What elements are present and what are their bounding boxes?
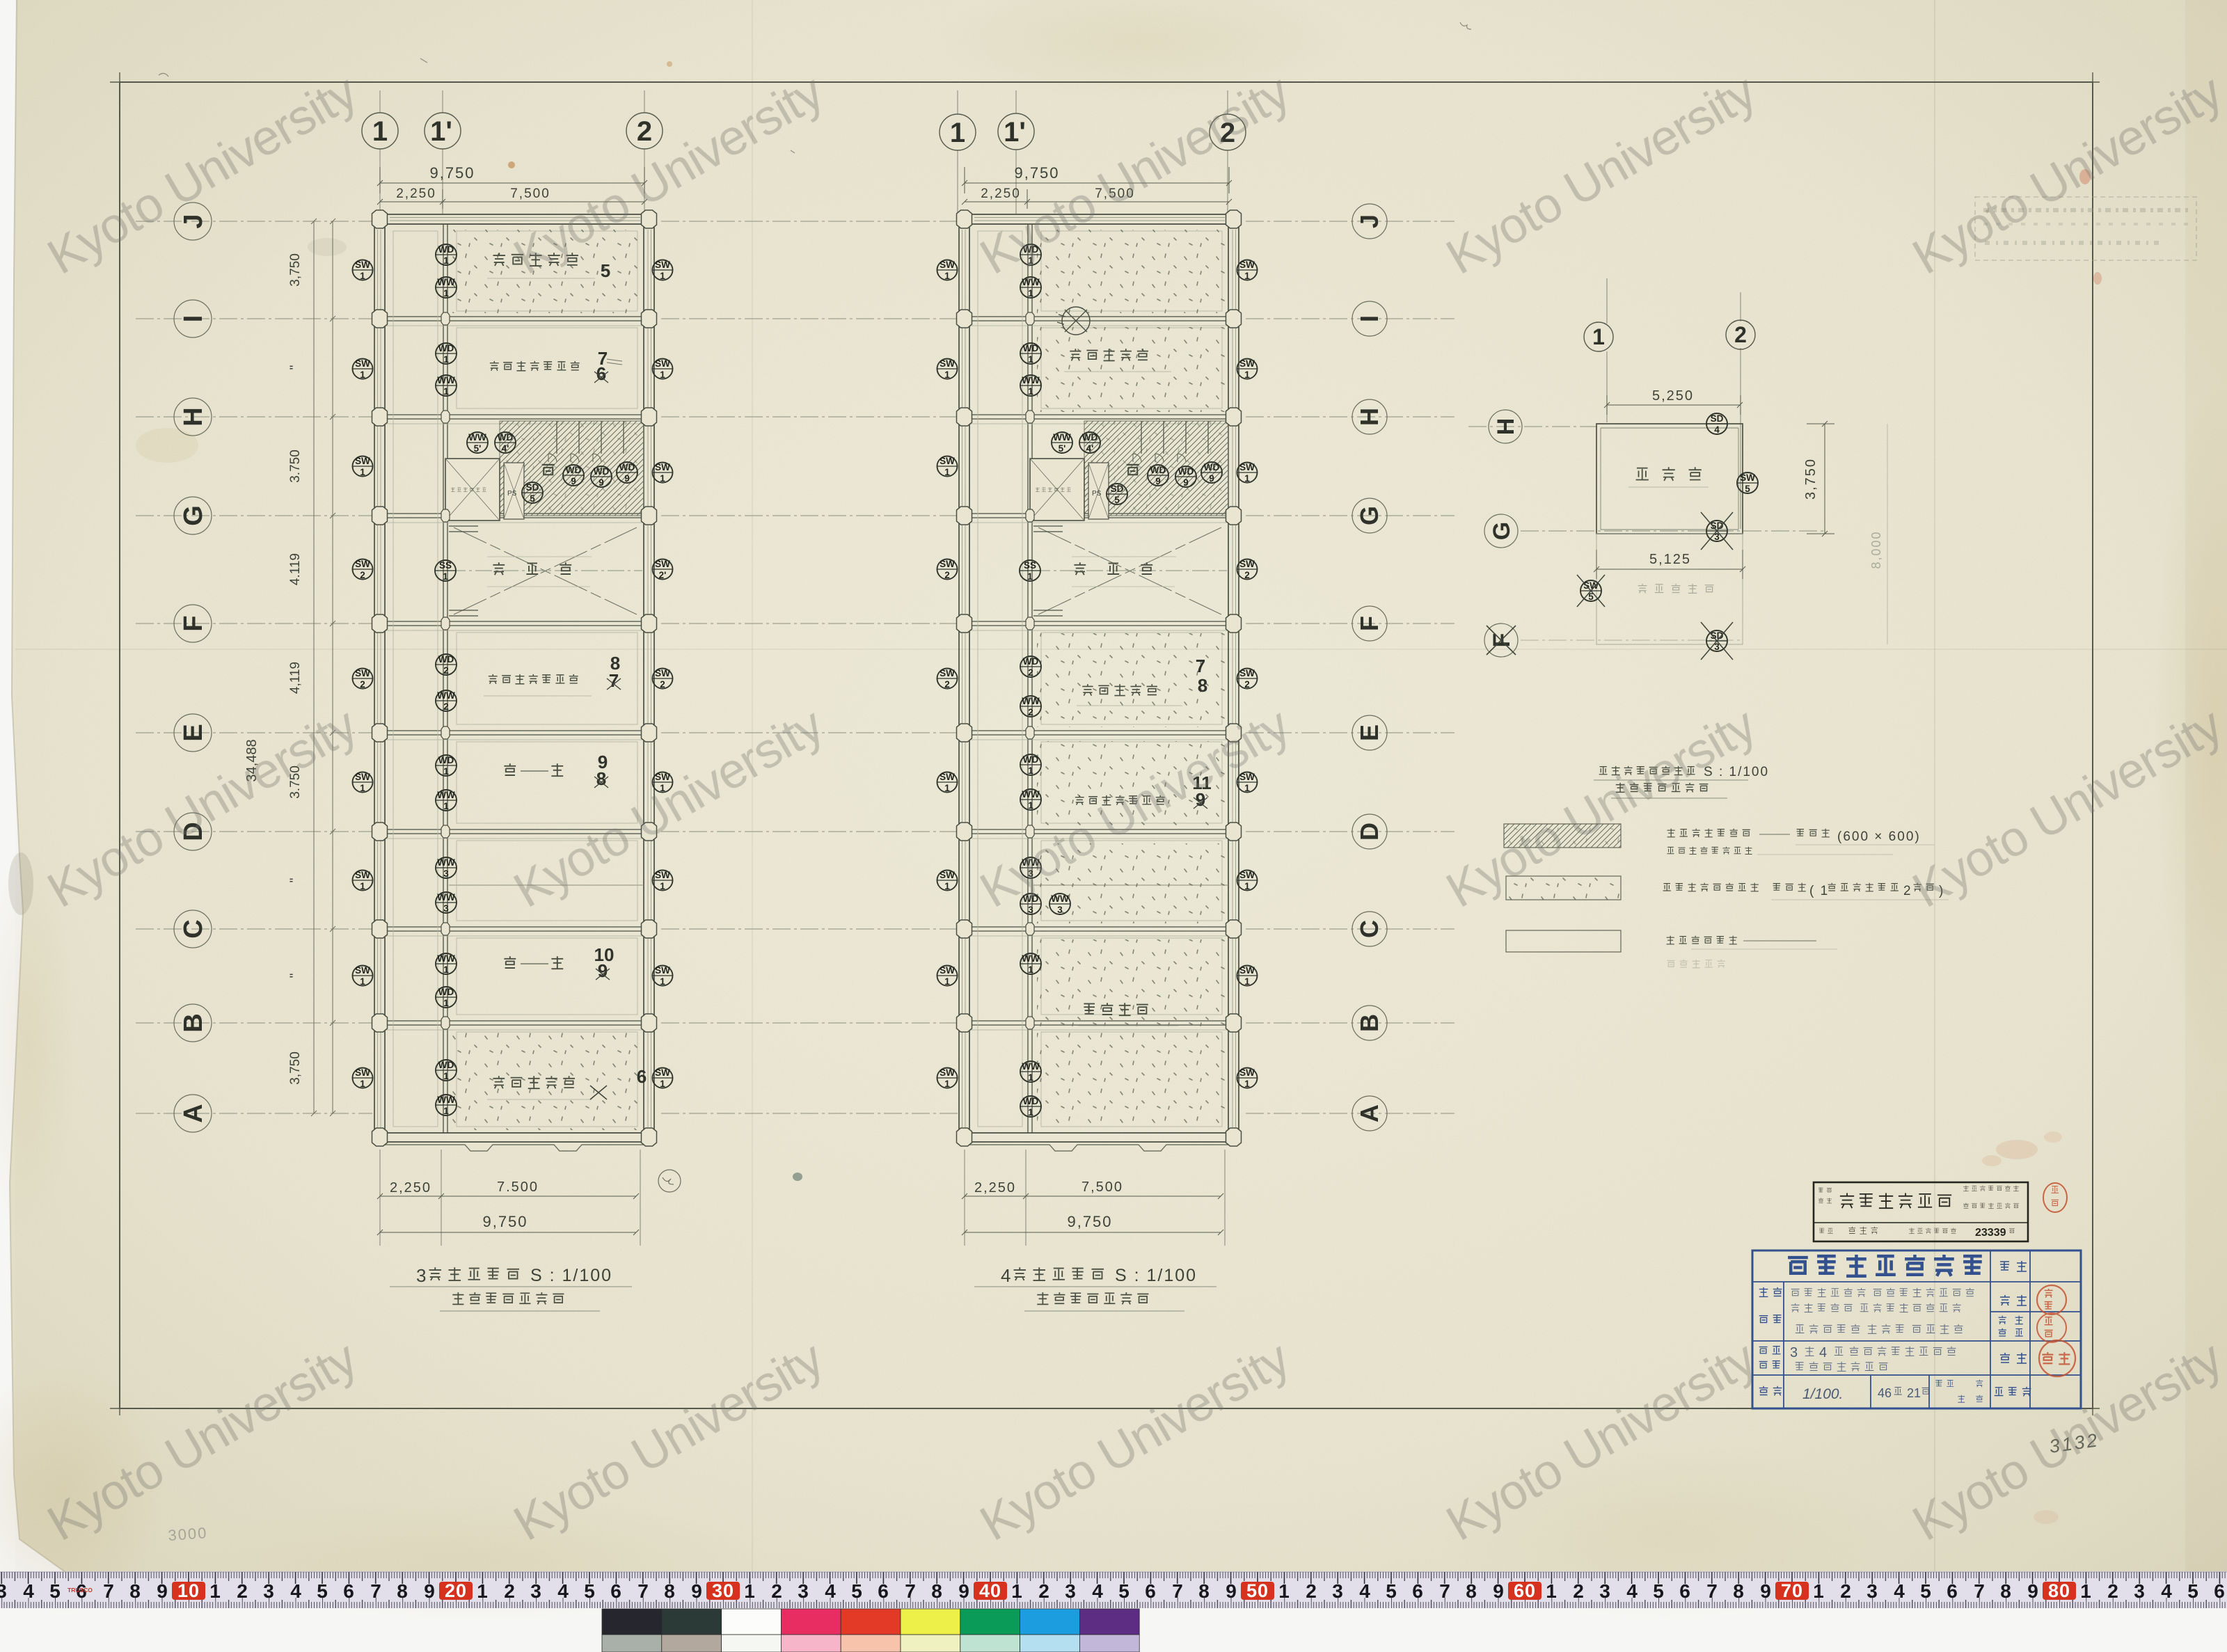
svg-text:1: 1 [443, 1071, 449, 1081]
svg-text:6: 6 [343, 1580, 354, 1602]
svg-text:A: A [1355, 1104, 1384, 1122]
svg-text:3: 3 [1599, 1580, 1610, 1602]
svg-text:WD: WD [1023, 656, 1039, 667]
svg-text:1: 1 [443, 255, 449, 266]
svg-text:1: 1 [2080, 1580, 2091, 1602]
svg-text:SD: SD [526, 482, 539, 493]
svg-text:3: 3 [443, 868, 449, 879]
svg-text:SS: SS [1024, 560, 1036, 571]
svg-text:SW: SW [655, 260, 670, 270]
svg-text:1: 1 [1592, 324, 1605, 349]
svg-text:WD: WD [498, 432, 514, 443]
svg-text:5: 5 [1920, 1580, 1931, 1602]
svg-text:1: 1 [944, 1079, 950, 1089]
svg-text:WW: WW [1022, 1061, 1040, 1072]
svg-text:3: 3 [1790, 1345, 1798, 1360]
svg-text:S : 1/100: S : 1/100 [530, 1266, 612, 1285]
svg-text:4: 4 [290, 1580, 301, 1602]
svg-text:1: 1 [360, 467, 365, 477]
svg-text:WW: WW [437, 790, 455, 800]
svg-text:SW: SW [1583, 580, 1599, 591]
svg-text:2: 2 [1038, 1580, 1049, 1602]
svg-text:WW: WW [1022, 277, 1040, 287]
svg-text:9: 9 [1493, 1580, 1504, 1602]
svg-text:SW: SW [940, 965, 955, 976]
svg-text:1: 1 [1813, 1580, 1824, 1602]
svg-text:SW: SW [1239, 870, 1255, 880]
svg-text:SW: SW [355, 965, 370, 976]
svg-text:SW: SW [355, 559, 370, 569]
svg-text:E: E [179, 724, 208, 741]
svg-text:5: 5 [584, 1580, 595, 1602]
svg-text:2: 2 [2107, 1580, 2118, 1602]
svg-text:WW: WW [437, 690, 455, 701]
svg-text:5: 5 [601, 260, 610, 281]
svg-text:PS: PS [507, 490, 517, 498]
svg-text:8: 8 [1198, 675, 1207, 696]
svg-text:80: 80 [2048, 1580, 2070, 1601]
svg-text:3: 3 [798, 1580, 809, 1602]
svg-text:SW: SW [940, 772, 955, 782]
svg-text:WD: WD [594, 466, 610, 477]
svg-text:WW: WW [437, 375, 455, 386]
svg-text:SS: SS [439, 560, 452, 571]
svg-text:1': 1' [430, 116, 452, 147]
svg-text:7: 7 [609, 670, 619, 691]
svg-text:1: 1 [1244, 976, 1250, 987]
svg-text:5: 5 [2187, 1580, 2198, 1602]
svg-text:8: 8 [397, 1580, 408, 1602]
svg-text:B: B [179, 1013, 208, 1032]
svg-text:1: 1 [944, 271, 950, 281]
svg-text:3: 3 [1028, 905, 1033, 915]
svg-text:7,500: 7,500 [510, 186, 550, 201]
svg-text:2: 2 [1903, 884, 1912, 898]
svg-text:WW: WW [437, 277, 455, 287]
svg-text:8: 8 [1466, 1580, 1477, 1602]
svg-text:1: 1 [1028, 386, 1033, 397]
svg-text:1: 1 [443, 354, 449, 365]
svg-text:1: 1 [360, 1079, 365, 1089]
svg-text:1: 1 [443, 766, 449, 777]
svg-text:J: J [1355, 214, 1384, 228]
svg-text:1: 1 [360, 370, 365, 380]
svg-text:2: 2 [1840, 1580, 1851, 1602]
svg-text:60: 60 [1514, 1580, 1536, 1601]
svg-text:1: 1 [1546, 1580, 1557, 1602]
svg-text:1: 1 [1278, 1580, 1290, 1602]
svg-text:1: 1 [372, 116, 388, 147]
svg-text:S : 1/100: S : 1/100 [1115, 1266, 1197, 1285]
svg-text:3,750: 3,750 [1803, 458, 1818, 500]
svg-text:3: 3 [0, 1580, 7, 1602]
svg-text:1: 1 [443, 1106, 449, 1116]
svg-text:3: 3 [2134, 1580, 2145, 1602]
svg-text:4: 4 [1359, 1580, 1370, 1602]
svg-text:2,250: 2,250 [396, 186, 436, 201]
svg-text:2,250: 2,250 [981, 186, 1021, 201]
svg-text:WW: WW [1022, 789, 1040, 800]
svg-text:1: 1 [443, 288, 449, 299]
svg-text:4: 4 [1714, 424, 1720, 435]
svg-text:5: 5 [1114, 495, 1120, 505]
svg-text:2: 2 [944, 570, 950, 580]
svg-text:WD: WD [1082, 432, 1098, 443]
svg-text:4,119: 4,119 [288, 662, 303, 694]
svg-text:2,250: 2,250 [974, 1180, 1016, 1196]
svg-text:7: 7 [637, 1580, 649, 1602]
svg-text:9,750: 9,750 [429, 164, 475, 182]
svg-text:2: 2 [1028, 707, 1033, 717]
svg-text:SW: SW [940, 668, 955, 678]
svg-text:2: 2 [443, 665, 449, 676]
svg-text:H: H [1493, 418, 1519, 436]
svg-text:G: G [179, 505, 208, 526]
svg-text:4: 4 [1819, 1345, 1827, 1360]
svg-text:( 1: ( 1 [1809, 884, 1829, 898]
svg-text:WD: WD [438, 654, 454, 665]
svg-text:SW: SW [1239, 965, 1255, 976]
svg-text:2: 2 [1028, 667, 1033, 678]
svg-text:1/100.: 1/100. [1802, 1386, 1843, 1402]
svg-text:WD: WD [1023, 343, 1039, 354]
svg-text:SW: SW [655, 965, 670, 976]
svg-text:H: H [179, 407, 208, 426]
svg-text:D: D [1355, 823, 1384, 841]
svg-text:9: 9 [424, 1580, 435, 1602]
svg-text:1: 1 [360, 881, 365, 891]
svg-text:2: 2 [637, 116, 652, 147]
svg-text:1: 1 [660, 370, 665, 380]
svg-text:1: 1 [1244, 881, 1250, 891]
svg-text:SW: SW [355, 1067, 370, 1078]
svg-text:5,125: 5,125 [1649, 552, 1691, 567]
svg-text:WW: WW [437, 1095, 455, 1105]
svg-text:5: 5 [851, 1580, 862, 1602]
svg-text:2: 2 [237, 1580, 248, 1602]
svg-text:WW: WW [1051, 893, 1069, 904]
svg-text:I: I [1355, 315, 1384, 322]
svg-text:F: F [179, 615, 208, 631]
svg-text:30: 30 [712, 1580, 734, 1601]
svg-text:8: 8 [1733, 1580, 1744, 1602]
svg-text:9: 9 [2027, 1580, 2038, 1602]
svg-text:WD: WD [619, 462, 635, 472]
svg-text:4: 4 [23, 1580, 34, 1602]
svg-text:SW: SW [1239, 260, 1255, 270]
svg-text:4': 4' [1086, 443, 1094, 454]
svg-text:9,750: 9,750 [482, 1213, 528, 1230]
svg-text:SW: SW [655, 1067, 670, 1078]
svg-text:WW: WW [468, 432, 486, 443]
svg-text:4': 4' [502, 443, 509, 454]
svg-text:40: 40 [979, 1580, 1001, 1601]
svg-text:WW: WW [1022, 696, 1040, 706]
svg-text:9: 9 [624, 473, 630, 484]
svg-text:6: 6 [596, 363, 606, 384]
svg-text:1: 1 [360, 271, 365, 281]
svg-text:8,000: 8,000 [1869, 530, 1883, 569]
svg-text:(600 × 600): (600 × 600) [1837, 829, 1921, 844]
svg-text:8: 8 [2000, 1580, 2011, 1602]
svg-text:SW: SW [1740, 472, 1755, 483]
svg-text:1: 1 [1244, 1079, 1250, 1089]
svg-text:1: 1 [1028, 964, 1033, 975]
svg-text:SW: SW [940, 870, 955, 880]
svg-text:20: 20 [445, 1580, 467, 1601]
svg-text:PS: PS [1092, 490, 1102, 498]
svg-text:46: 46 [1878, 1386, 1892, 1400]
svg-text:WD: WD [438, 343, 454, 354]
svg-text:SW: SW [355, 358, 370, 369]
svg-text:4: 4 [2161, 1580, 2172, 1602]
svg-text:7.500: 7.500 [497, 1180, 539, 1195]
svg-text:WD: WD [438, 755, 454, 765]
svg-text:3000: 3000 [168, 1524, 209, 1544]
svg-text:WW: WW [1022, 375, 1040, 386]
svg-text:4: 4 [1092, 1580, 1103, 1602]
svg-text:5: 5 [1745, 484, 1750, 494]
svg-text:1: 1 [660, 881, 665, 891]
svg-text:1: 1 [660, 271, 665, 281]
svg-text:3: 3 [530, 1580, 541, 1602]
svg-text:9: 9 [157, 1580, 168, 1602]
svg-text:7: 7 [1974, 1580, 1985, 1602]
svg-text:9: 9 [1760, 1580, 1771, 1602]
svg-text:9: 9 [1183, 477, 1189, 488]
svg-text:1': 1' [1004, 117, 1026, 148]
svg-text:I: I [179, 315, 208, 323]
svg-text:SW: SW [1239, 358, 1255, 369]
svg-text:8: 8 [1198, 1580, 1210, 1602]
svg-text:1: 1 [1028, 800, 1033, 811]
svg-text:3,750: 3,750 [288, 253, 303, 287]
svg-text:2: 2 [1573, 1580, 1584, 1602]
svg-text:2: 2 [443, 701, 449, 712]
svg-text:SW: SW [940, 1067, 955, 1078]
svg-text:4: 4 [557, 1580, 569, 1602]
svg-text:8: 8 [664, 1580, 675, 1602]
svg-text:SW: SW [355, 260, 370, 270]
svg-text:1: 1 [1244, 370, 1250, 380]
svg-text:5,250: 5,250 [1652, 388, 1694, 404]
svg-text:1: 1 [360, 783, 365, 793]
svg-text:SW: SW [1239, 462, 1255, 472]
svg-text:SW: SW [940, 260, 955, 270]
svg-text:3,750: 3,750 [288, 1051, 303, 1085]
svg-text:6: 6 [1145, 1580, 1156, 1602]
svg-text:WD: WD [566, 465, 582, 475]
svg-text:6: 6 [878, 1580, 889, 1602]
svg-text:1: 1 [1028, 288, 1033, 299]
svg-text:1: 1 [660, 473, 665, 484]
svg-text:WD: WD [1023, 1096, 1039, 1106]
svg-text:1: 1 [1028, 354, 1033, 365]
svg-text:WD: WD [438, 244, 454, 255]
svg-text:SW: SW [655, 358, 670, 369]
svg-text:21: 21 [1907, 1386, 1921, 1400]
svg-text:2: 2 [660, 679, 665, 690]
svg-text:23339: 23339 [1975, 1227, 2006, 1239]
svg-text:3: 3 [443, 903, 449, 914]
svg-text:1: 1 [443, 386, 449, 397]
svg-text:3: 3 [1867, 1580, 1878, 1602]
svg-text:WW: WW [437, 953, 455, 964]
svg-text:WD: WD [438, 1060, 454, 1070]
svg-text:1: 1 [1244, 473, 1250, 484]
svg-text:4.119: 4.119 [288, 553, 303, 585]
svg-text:7: 7 [1439, 1580, 1450, 1602]
svg-text:1: 1 [744, 1580, 755, 1602]
svg-text:2: 2 [1734, 322, 1747, 347]
svg-text:8: 8 [931, 1580, 942, 1602]
svg-text:1: 1 [1028, 765, 1033, 776]
svg-text:SW: SW [1239, 1067, 1255, 1078]
svg-text:5: 5 [317, 1580, 328, 1602]
svg-text:SW: SW [655, 668, 670, 678]
svg-text:1: 1 [944, 370, 950, 380]
svg-text:6: 6 [1679, 1580, 1690, 1602]
svg-text:1: 1 [950, 118, 965, 148]
svg-text:9,750: 9,750 [1014, 164, 1059, 182]
svg-text:9: 9 [958, 1580, 969, 1602]
svg-text:6: 6 [2214, 1580, 2225, 1602]
svg-text:SW: SW [655, 870, 670, 880]
svg-text:WW: WW [437, 892, 455, 903]
svg-text:4: 4 [1626, 1580, 1638, 1602]
svg-text:SW: SW [655, 462, 670, 472]
svg-text:50: 50 [1246, 1580, 1269, 1601]
svg-text:SW: SW [655, 559, 670, 569]
svg-text:7: 7 [905, 1580, 916, 1602]
svg-text:1: 1 [477, 1580, 488, 1602]
svg-text:": " [288, 974, 303, 978]
svg-text:6: 6 [1947, 1580, 1958, 1602]
svg-text:1: 1 [209, 1580, 221, 1602]
svg-text:7,500: 7,500 [1081, 1180, 1123, 1195]
svg-text:5': 5' [474, 443, 482, 454]
svg-text:70: 70 [1781, 1580, 1803, 1601]
svg-text:3: 3 [1065, 1580, 1076, 1602]
svg-text:9: 9 [598, 960, 608, 981]
svg-text:2: 2 [504, 1580, 515, 1602]
svg-text:6: 6 [1412, 1580, 1423, 1602]
svg-text:5': 5' [1059, 443, 1066, 454]
svg-text:10: 10 [177, 1580, 200, 1601]
svg-text:7: 7 [1172, 1580, 1183, 1602]
svg-text:3.750: 3.750 [288, 450, 303, 483]
svg-text:1: 1 [660, 976, 665, 987]
svg-text:WW: WW [1022, 953, 1040, 964]
svg-text:C: C [179, 919, 208, 938]
svg-text:2: 2 [1244, 570, 1250, 580]
svg-text:2: 2 [1244, 679, 1250, 690]
svg-text:SW: SW [1239, 668, 1255, 678]
svg-text:8: 8 [596, 768, 606, 789]
svg-text:WD: WD [438, 987, 454, 997]
svg-text:6: 6 [637, 1066, 647, 1087]
svg-text:SD: SD [1111, 484, 1124, 494]
svg-text:5: 5 [1118, 1580, 1130, 1602]
svg-text:SW: SW [355, 870, 370, 880]
svg-text:SW: SW [355, 456, 370, 466]
svg-text:7: 7 [370, 1580, 381, 1602]
svg-text:F: F [1355, 616, 1384, 631]
svg-text:1: 1 [1028, 1107, 1033, 1118]
svg-text:3: 3 [416, 1265, 427, 1286]
svg-text:WD: WD [1150, 465, 1166, 475]
svg-text:H: H [1355, 408, 1384, 426]
svg-text:9: 9 [599, 477, 604, 488]
svg-text:9: 9 [571, 476, 576, 486]
svg-text:3: 3 [1332, 1580, 1343, 1602]
svg-text:1: 1 [443, 964, 449, 975]
svg-text:2: 2 [360, 679, 365, 690]
svg-text:G: G [1489, 522, 1515, 540]
svg-text:1: 1 [1028, 1072, 1033, 1083]
svg-text:9: 9 [691, 1580, 702, 1602]
svg-text:2,250: 2,250 [390, 1180, 431, 1196]
svg-text:1: 1 [660, 1079, 665, 1089]
svg-text:2': 2' [659, 570, 667, 580]
svg-text:SW: SW [940, 559, 955, 569]
svg-text:1: 1 [1027, 571, 1033, 582]
svg-text:C: C [1355, 920, 1384, 938]
svg-text:9,750: 9,750 [1067, 1213, 1112, 1230]
svg-text:2: 2 [360, 570, 365, 580]
svg-text:SW: SW [940, 358, 955, 369]
svg-text:WD: WD [1023, 754, 1039, 765]
svg-text:4: 4 [1894, 1580, 1905, 1602]
svg-text:SW: SW [940, 456, 955, 466]
svg-text:3: 3 [263, 1580, 274, 1602]
svg-text:WD: WD [1204, 462, 1220, 472]
svg-text:1: 1 [443, 801, 449, 811]
svg-text:7: 7 [103, 1580, 114, 1602]
svg-text:2: 2 [771, 1580, 782, 1602]
svg-text:SW: SW [355, 668, 370, 678]
svg-text:WW: WW [437, 857, 455, 868]
svg-text:5: 5 [49, 1580, 61, 1602]
svg-text:SD: SD [1711, 413, 1724, 424]
svg-text:A: A [179, 1104, 208, 1122]
svg-text:1: 1 [443, 571, 448, 582]
svg-text:TRUSCO: TRUSCO [68, 1587, 93, 1594]
svg-text:1: 1 [443, 998, 449, 1008]
svg-text:WD: WD [1178, 466, 1194, 477]
svg-text:1: 1 [360, 976, 365, 987]
svg-text:1: 1 [944, 467, 950, 477]
svg-text:E: E [1355, 724, 1384, 741]
svg-text:2: 2 [944, 679, 950, 690]
svg-text:1: 1 [944, 881, 950, 891]
svg-text:9: 9 [1209, 473, 1214, 484]
svg-text:SW: SW [355, 772, 370, 782]
svg-text:4: 4 [1001, 1265, 1012, 1286]
svg-text:3: 3 [1057, 905, 1063, 915]
svg-text:": " [288, 878, 303, 883]
svg-text:5: 5 [1653, 1580, 1664, 1602]
svg-text:9: 9 [1155, 476, 1161, 486]
svg-text:7: 7 [1706, 1580, 1718, 1602]
svg-text:B: B [1355, 1014, 1384, 1032]
svg-text:WW: WW [1053, 432, 1071, 443]
svg-text:7: 7 [1196, 656, 1205, 676]
svg-text:1: 1 [1011, 1580, 1022, 1602]
svg-text:5: 5 [530, 493, 535, 504]
svg-text:G: G [1355, 506, 1384, 525]
svg-text:1: 1 [1244, 271, 1250, 281]
